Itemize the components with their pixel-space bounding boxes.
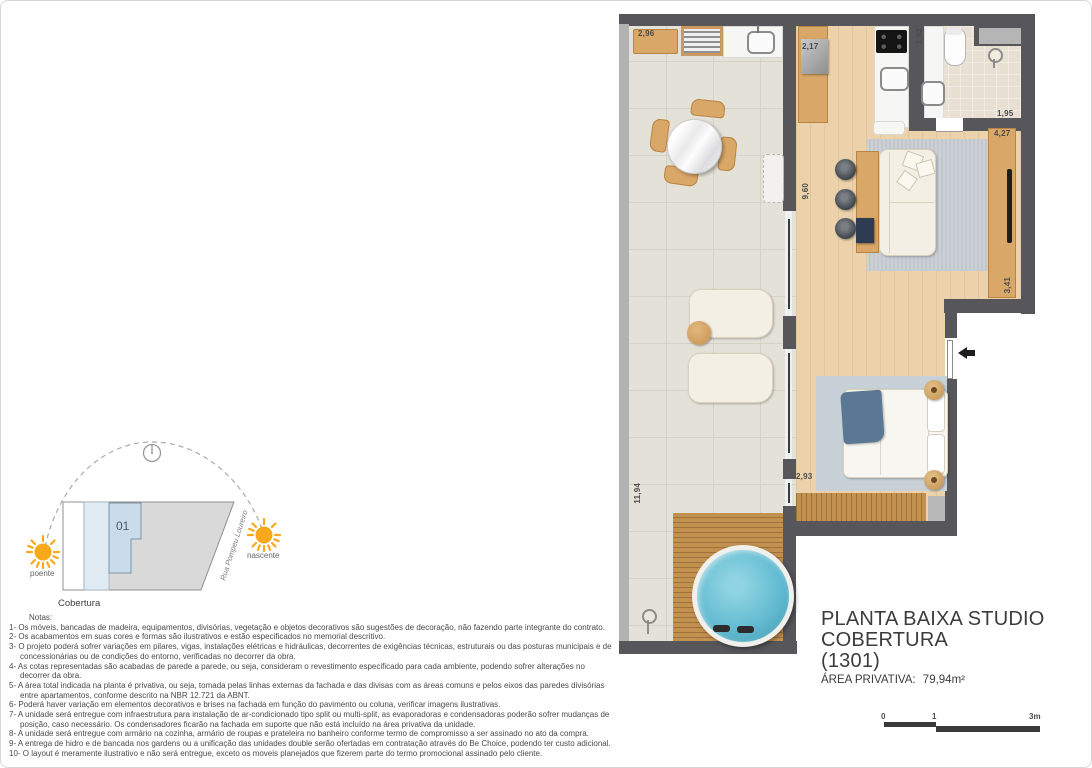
bedroom-deck [796, 493, 926, 522]
sun-icon-east [248, 519, 280, 551]
outdoor-sink [747, 31, 775, 54]
tv-screen [1007, 169, 1012, 243]
plan-title: PLANTA BAIXA STUDIO COBERTURA [821, 609, 1085, 651]
dim-kitchen-cabinet: 2,17 [802, 42, 818, 51]
private-area-value: 79,94m² [923, 674, 965, 686]
wall-divider-top [783, 14, 796, 211]
dim-bedroom: 2,93 [796, 472, 812, 481]
key-plan: poente nascente 01 Rua Pompeu Loureiro [11, 426, 311, 616]
pillar-1 [783, 316, 796, 349]
cooktop [876, 30, 907, 53]
note-item: 6- Poderá haver variação em elementos de… [9, 700, 613, 710]
wall-top [619, 14, 1029, 26]
shower-stem [993, 59, 995, 68]
entry-door-leaf [947, 340, 953, 379]
bathroom-basin [921, 81, 945, 106]
footprint-white-strip [63, 502, 84, 590]
dim-outdoor-bench: 2,96 [638, 29, 654, 38]
footprint-light-strip [84, 502, 109, 590]
unit-01-label: 01 [116, 519, 130, 533]
wall-bottom-terrace [619, 641, 797, 654]
bed-pillow [927, 434, 945, 474]
keyplan-floor-label: Cobertura [58, 598, 100, 609]
bathroom-vanity [924, 26, 944, 128]
wall-living-bottom [944, 299, 1035, 313]
bed-blanket [840, 390, 885, 445]
note-item: 8- A unidade será entregue com armário n… [9, 729, 613, 739]
sun-west-label: poente [30, 569, 55, 578]
sun-east-label: nascente [247, 551, 280, 560]
hot-tub-headrest [713, 625, 730, 632]
plan-unit: (1301) [821, 651, 1085, 672]
note-item: 1- Os móveis, bancadas de madeira, equip… [9, 623, 613, 633]
scale-0: 0 [881, 712, 885, 721]
outdoor-faucet-icon [757, 25, 759, 33]
note-item: 9- A entrega de hidro e de bancada nos g… [9, 739, 613, 749]
terrace-parapet [619, 24, 629, 641]
scale-segment-1 [884, 722, 936, 727]
dim-terrace-length: 11,94 [633, 483, 642, 504]
note-item: 10- O layout é meramente ilustrativo e n… [9, 749, 613, 759]
sun-icon-west [27, 536, 59, 568]
tv-on-counter [856, 218, 874, 243]
shower-head-icon [988, 48, 1003, 63]
kitchen-console [873, 121, 905, 135]
lounge-chair [688, 353, 773, 403]
notes-heading: Notas: [9, 613, 613, 623]
dim-bath-width: 1,82 [915, 28, 924, 44]
ghost-cabinet-outline [763, 154, 784, 203]
title-block: PLANTA BAIXA STUDIO COBERTURA (1301) ÁRE… [821, 609, 1085, 686]
toilet-tank [946, 28, 962, 35]
bathroom-door [936, 118, 963, 132]
side-table [687, 321, 711, 345]
private-area: ÁREA PRIVATIVA: 79,94m² [821, 674, 1085, 686]
pillar-2 [783, 459, 796, 479]
dim-bath-length: 1,95 [997, 109, 1013, 118]
ac-condenser-slot [979, 28, 1024, 44]
nightstand-lamp-icon [931, 387, 937, 393]
bar-stool [835, 218, 856, 239]
floorplan-sheet: 2,96 2,17 1,82 1,95 4,27 9,60 3,41 2,93 … [0, 0, 1092, 768]
scale-3m: 3m [1029, 712, 1041, 721]
wall-right [1021, 14, 1035, 314]
dim-living-length: 9,60 [801, 183, 810, 199]
outdoor-shower-stem [647, 620, 649, 634]
private-area-label: ÁREA PRIVATIVA: [821, 674, 916, 686]
note-item: 5- A área total indicada na planta é pri… [9, 681, 613, 700]
note-item: 7- A unidade será entregue com infraestr… [9, 710, 613, 729]
dim-living-width: 4,27 [994, 129, 1010, 138]
outdoor-shower-icon [642, 609, 657, 624]
grill-counter [681, 26, 723, 56]
hot-tub-headrest [737, 626, 754, 633]
scale-1: 1 [932, 712, 936, 721]
note-item: 4- As cotas representadas são acabadas d… [9, 662, 613, 681]
bar-stool [835, 159, 856, 180]
wall-bedroom-bottom [791, 521, 957, 536]
scale-segment-2 [936, 726, 1040, 732]
bar-stool [835, 189, 856, 210]
dining-chair [690, 98, 726, 118]
glass-frame-2 [788, 353, 790, 453]
compass-icon [144, 445, 161, 462]
note-item: 2- Os acabamentos em suas cores e formas… [9, 632, 613, 642]
dim-sideboard: 3,41 [1003, 277, 1012, 293]
note-item: 3- O projeto poderá sofrer variações em … [9, 642, 613, 661]
glass-frame-3 [788, 483, 790, 503]
notes-block: Notas: 1- Os móveis, bancadas de madeira… [9, 613, 613, 759]
kitchen-sink [880, 67, 909, 91]
glass-frame-1 [788, 219, 790, 309]
dining-table [667, 119, 722, 174]
nightstand-lamp-icon [931, 477, 937, 483]
